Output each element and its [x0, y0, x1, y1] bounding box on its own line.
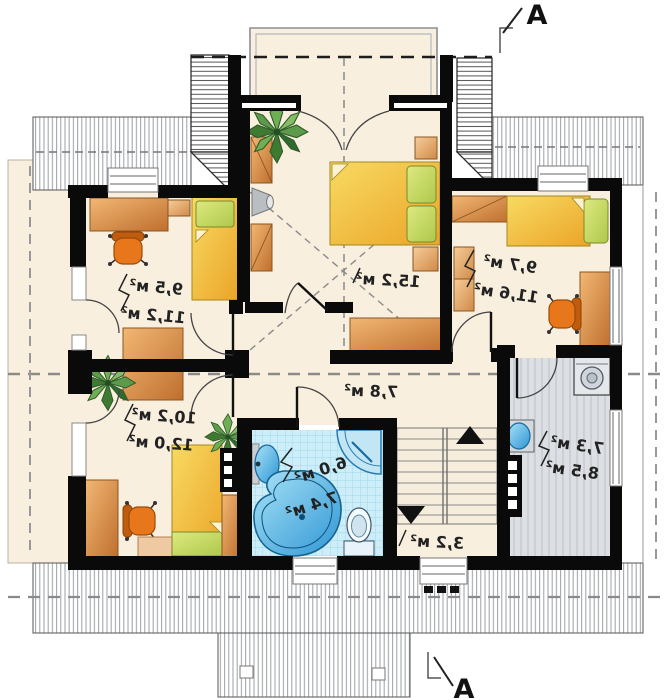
- shelf: [454, 247, 474, 279]
- nightstand: [415, 137, 437, 159]
- window: [293, 558, 337, 584]
- double-bed: [330, 162, 440, 245]
- window: [108, 168, 158, 192]
- area-label: 7,8 м²: [344, 381, 399, 402]
- pillow: [196, 201, 234, 227]
- dresser: [350, 318, 450, 351]
- nightstand: [413, 247, 438, 271]
- bed: [507, 196, 608, 246]
- shelf: [168, 200, 190, 216]
- bed: [192, 197, 238, 300]
- desk: [580, 272, 610, 348]
- floor-plan: 9,5 м² 11,2 м² 15,2 м² 9,7 м² 11,6 м² 10…: [0, 0, 670, 700]
- window: [610, 410, 622, 486]
- desk: [85, 480, 118, 558]
- bed: [172, 445, 222, 558]
- radiator: [220, 448, 237, 492]
- shelf: [454, 279, 474, 311]
- attic-side-space: [8, 160, 70, 563]
- sidelight: [242, 103, 296, 108]
- window: [538, 166, 588, 191]
- office-chair: [547, 294, 581, 334]
- desk: [90, 198, 168, 231]
- roof-extension: [218, 633, 410, 697]
- pillow: [407, 206, 436, 242]
- side-table: [138, 537, 175, 558]
- area-label: 15,2 м²: [355, 269, 421, 291]
- staircase: [397, 426, 497, 524]
- section-label: A: [527, 0, 548, 31]
- pillow: [584, 199, 608, 243]
- pillow: [407, 166, 436, 203]
- floor-plan-drawing: 9,5 м² 11,2 м² 15,2 м² 9,7 м² 11,6 м² 10…: [0, 0, 670, 700]
- radiator: [504, 455, 522, 517]
- washing-machine: [574, 357, 610, 395]
- window: [610, 267, 622, 345]
- section-label: A: [454, 674, 475, 700]
- office-chair: [108, 232, 148, 266]
- office-chair: [123, 501, 157, 541]
- sidelight: [394, 103, 447, 108]
- area-label: 3,2 м²: [410, 531, 465, 553]
